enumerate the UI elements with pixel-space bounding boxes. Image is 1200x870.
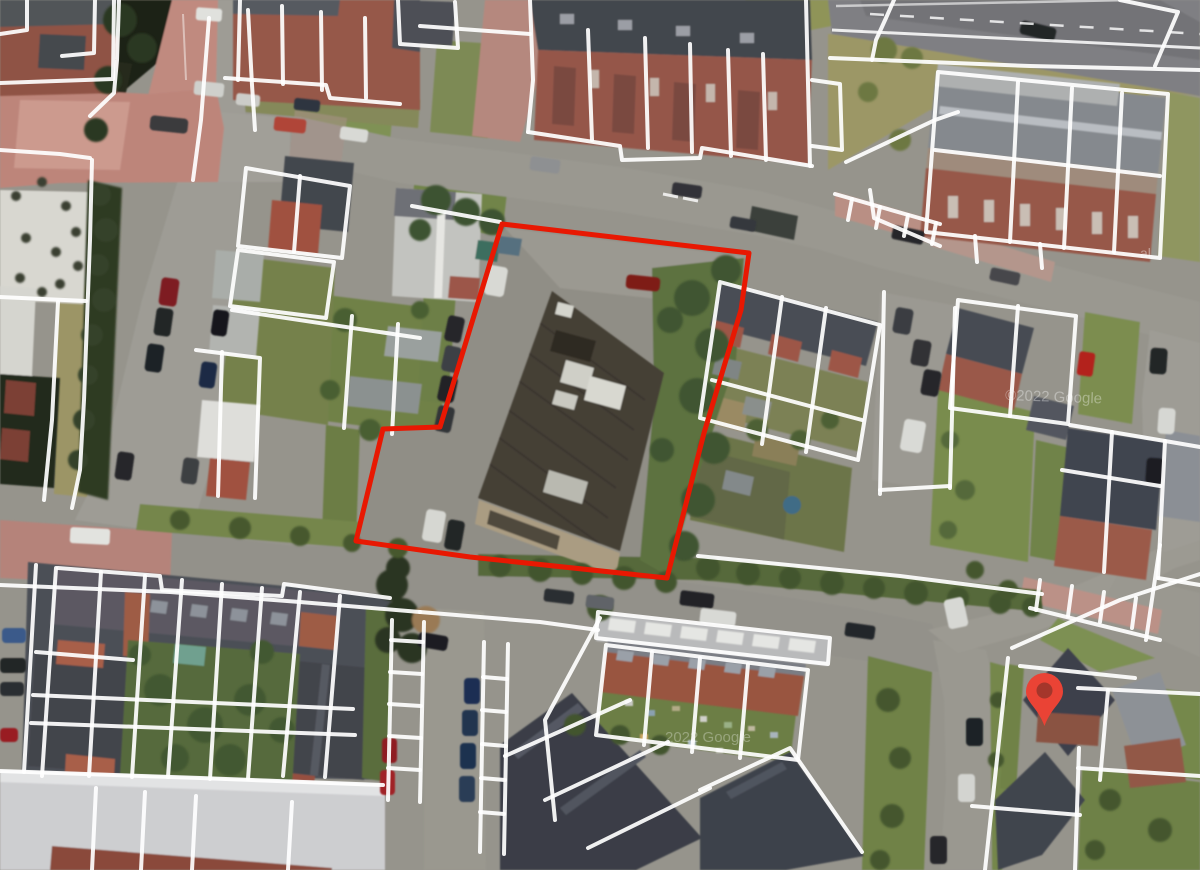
svg-text:al: al (1140, 245, 1151, 261)
svg-text:2022 Google: 2022 Google (665, 729, 751, 746)
svg-text:©2022 Google: ©2022 Google (1005, 387, 1103, 407)
